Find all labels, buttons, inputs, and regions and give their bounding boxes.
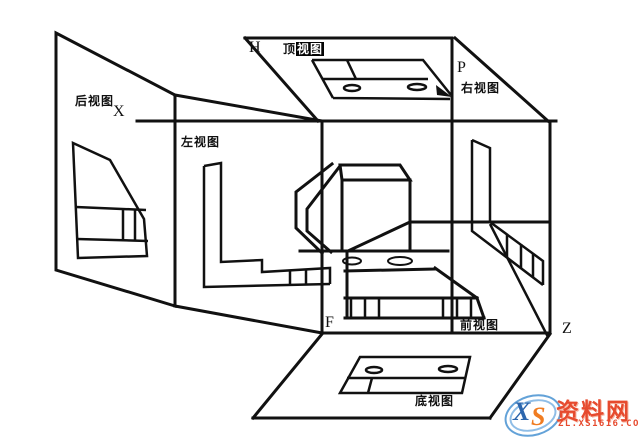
- watermark-logo-s: S: [531, 402, 545, 432]
- top-view-drawing: [312, 60, 452, 99]
- view-label-top: 顶视图: [283, 43, 324, 55]
- watermark-logo-x: X: [513, 397, 530, 427]
- view-label-rear: 后视图: [75, 95, 114, 107]
- plane-label-p: P: [457, 60, 466, 76]
- object-3d: [296, 164, 548, 318]
- view-label-front: 前视图: [460, 319, 499, 331]
- watermark-site-url: ZL.XS1616.COM: [558, 419, 640, 429]
- right-view-drawing: [472, 140, 548, 337]
- view-label-top-highlight: 视图: [296, 42, 324, 56]
- plane-label-h: H: [249, 40, 261, 56]
- rear-view-drawing: [73, 143, 148, 258]
- plane-label-f: F: [325, 315, 334, 331]
- axis-label-x: X: [113, 104, 125, 120]
- view-label-top-prefix: 顶: [283, 42, 296, 56]
- view-label-right: 右视图: [461, 82, 500, 94]
- view-label-left: 左视图: [181, 136, 220, 148]
- bottom-view-drawing: [340, 357, 470, 393]
- axis-label-z: Z: [562, 321, 572, 337]
- diagram-linework: [0, 0, 640, 439]
- projection-diagram: H P F X Z 顶视图 右视图 后视图 左视图 前视图 底视图 X S 资料…: [0, 0, 640, 439]
- view-label-bottom: 底视图: [415, 395, 454, 407]
